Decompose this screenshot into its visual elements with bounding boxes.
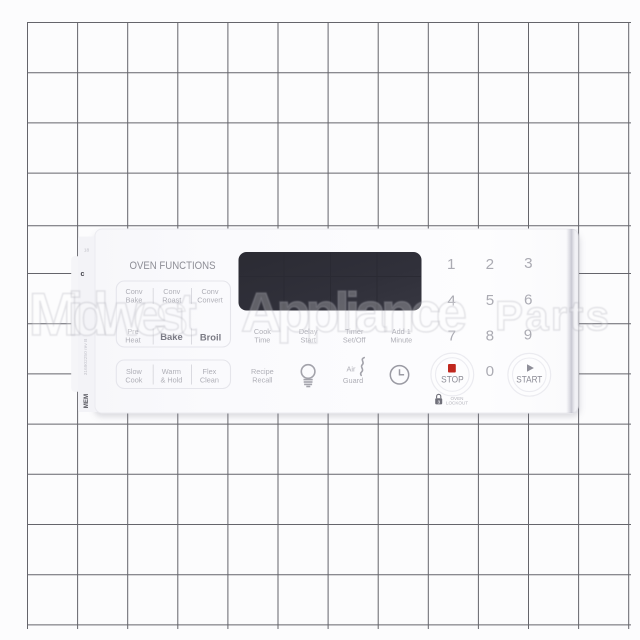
svg-text:Appliance: Appliance: [241, 281, 467, 344]
svg-text:3: 3: [437, 399, 440, 405]
svg-text:Parts: Parts: [495, 292, 609, 339]
svg-text:Recall: Recall: [252, 375, 273, 384]
svg-text:3: 3: [524, 255, 532, 272]
svg-text:Cook: Cook: [125, 375, 142, 384]
svg-text:1: 1: [447, 256, 455, 273]
svg-text:18: 18: [84, 248, 90, 254]
svg-text:MEM: MEM: [83, 394, 90, 408]
svg-text:& Hold: & Hold: [160, 375, 182, 384]
svg-text:Midwest: Midwest: [29, 281, 198, 348]
svg-text:Broil: Broil: [200, 331, 221, 342]
svg-text:STOP: STOP: [441, 375, 464, 386]
svg-text:LOCKOUT: LOCKOUT: [446, 400, 468, 405]
svg-text:Convert: Convert: [197, 296, 223, 305]
svg-text:Conv: Conv: [201, 287, 218, 296]
svg-text:c: c: [81, 271, 85, 278]
svg-text:Guard: Guard: [343, 376, 363, 385]
svg-text:0: 0: [486, 363, 494, 380]
svg-text:OVEN FUNCTIONS: OVEN FUNCTIONS: [130, 260, 216, 272]
svg-text:Air: Air: [347, 365, 356, 374]
svg-text:2: 2: [486, 256, 494, 273]
svg-text:START: START: [516, 375, 542, 386]
svg-text:8: 8: [486, 328, 494, 345]
svg-text:Clean: Clean: [200, 375, 219, 384]
svg-text:5: 5: [486, 292, 494, 309]
